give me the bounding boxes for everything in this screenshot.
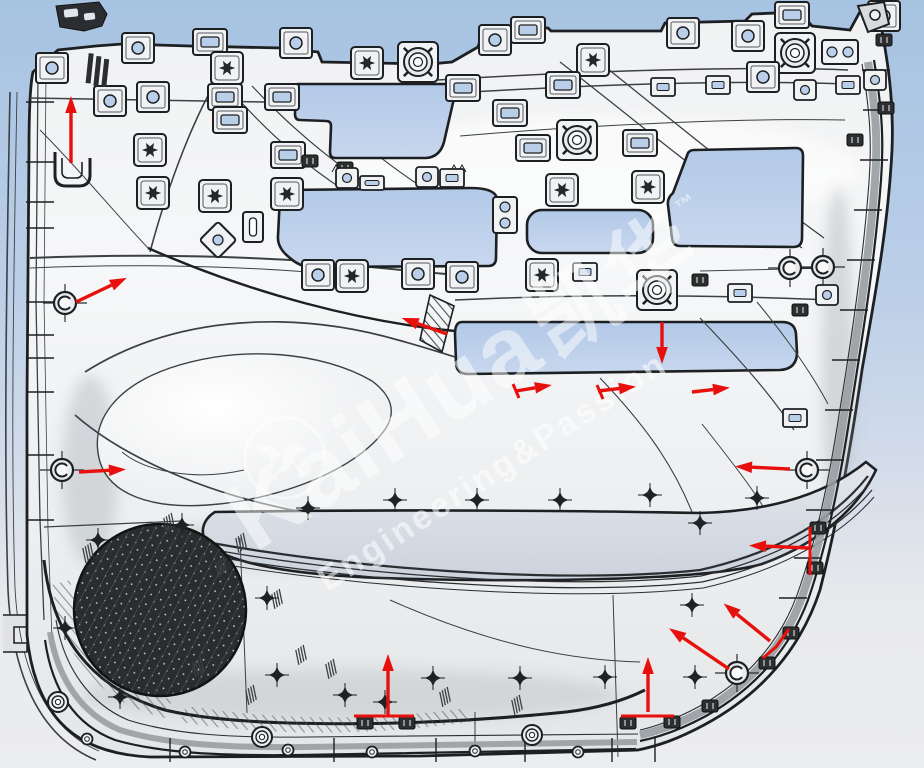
clip-c <box>667 18 699 48</box>
clip-r <box>271 142 305 168</box>
clip-c <box>446 262 478 292</box>
clip-r <box>546 72 580 98</box>
clip-r <box>265 84 299 110</box>
bolt-fastener <box>283 745 294 756</box>
door-trim-panel-drawing: KaiHua凯华™ Engineering&Passion <box>0 0 924 768</box>
clip-r2 <box>728 284 752 302</box>
clip-c <box>402 259 434 289</box>
clip-s <box>137 177 169 209</box>
clip-t <box>557 120 597 160</box>
window-cutout-lower <box>278 188 497 267</box>
clip-f <box>664 716 680 728</box>
clip-c <box>479 25 511 55</box>
clip-2v <box>493 197 517 233</box>
clip-r <box>446 75 480 101</box>
clip-r <box>511 17 545 43</box>
clip-s <box>134 134 166 166</box>
clip-c <box>137 82 169 112</box>
bolt-fastener <box>180 747 191 758</box>
clip-r <box>213 107 247 133</box>
clip-f <box>876 34 892 46</box>
clip-c2 <box>336 168 358 188</box>
clip-c <box>732 21 764 51</box>
clip-r2 <box>783 409 807 427</box>
clip-f <box>302 155 318 167</box>
clip-f <box>759 657 775 669</box>
clip-t <box>775 33 815 73</box>
clip-r <box>623 130 657 156</box>
clip-r2 <box>706 76 730 94</box>
clip-c <box>280 28 312 58</box>
clip-f <box>620 717 636 729</box>
clip-f <box>792 304 808 316</box>
clip-s <box>351 47 383 79</box>
clip-s <box>336 260 368 292</box>
clip-c <box>94 86 126 116</box>
clip-c2 <box>816 285 838 305</box>
clip-s <box>271 178 303 210</box>
bolt-fastener <box>367 747 378 758</box>
clip-s <box>211 52 243 84</box>
clip-r2 <box>651 78 675 96</box>
clip-t <box>398 42 438 82</box>
clip-f <box>847 134 863 146</box>
clip-s <box>546 174 578 206</box>
bolt-fastener <box>470 746 481 757</box>
clip-f <box>810 522 826 534</box>
clip-r <box>775 2 809 28</box>
clip-f <box>399 717 415 729</box>
clip-c <box>122 33 154 63</box>
clip-2h <box>822 40 858 64</box>
bolt-fastener <box>82 734 93 745</box>
speaker-grille <box>74 524 246 696</box>
clip-c2 <box>864 70 886 90</box>
clip-f <box>878 102 894 114</box>
clip-c <box>747 62 779 92</box>
clip-r <box>493 100 527 126</box>
clip-slotV <box>243 212 263 242</box>
grommet-fastener <box>48 692 68 712</box>
clip-r2 <box>836 76 860 94</box>
clip-c2 <box>794 80 816 100</box>
bolt-fastener <box>573 747 584 758</box>
cad-viewport: KaiHua凯华™ Engineering&Passion <box>0 0 924 768</box>
clip-r2 <box>440 169 464 187</box>
grommet-fastener <box>252 727 272 747</box>
clip-c <box>36 53 68 83</box>
clip-c <box>302 260 334 290</box>
clip-f <box>702 700 718 712</box>
clip-r <box>516 135 550 161</box>
clip-s <box>199 180 231 212</box>
grommet-fastener <box>522 725 542 745</box>
clip-f <box>357 717 373 729</box>
clip-c2 <box>416 167 438 187</box>
clip-s <box>577 44 609 76</box>
clip-slotH <box>360 176 384 190</box>
